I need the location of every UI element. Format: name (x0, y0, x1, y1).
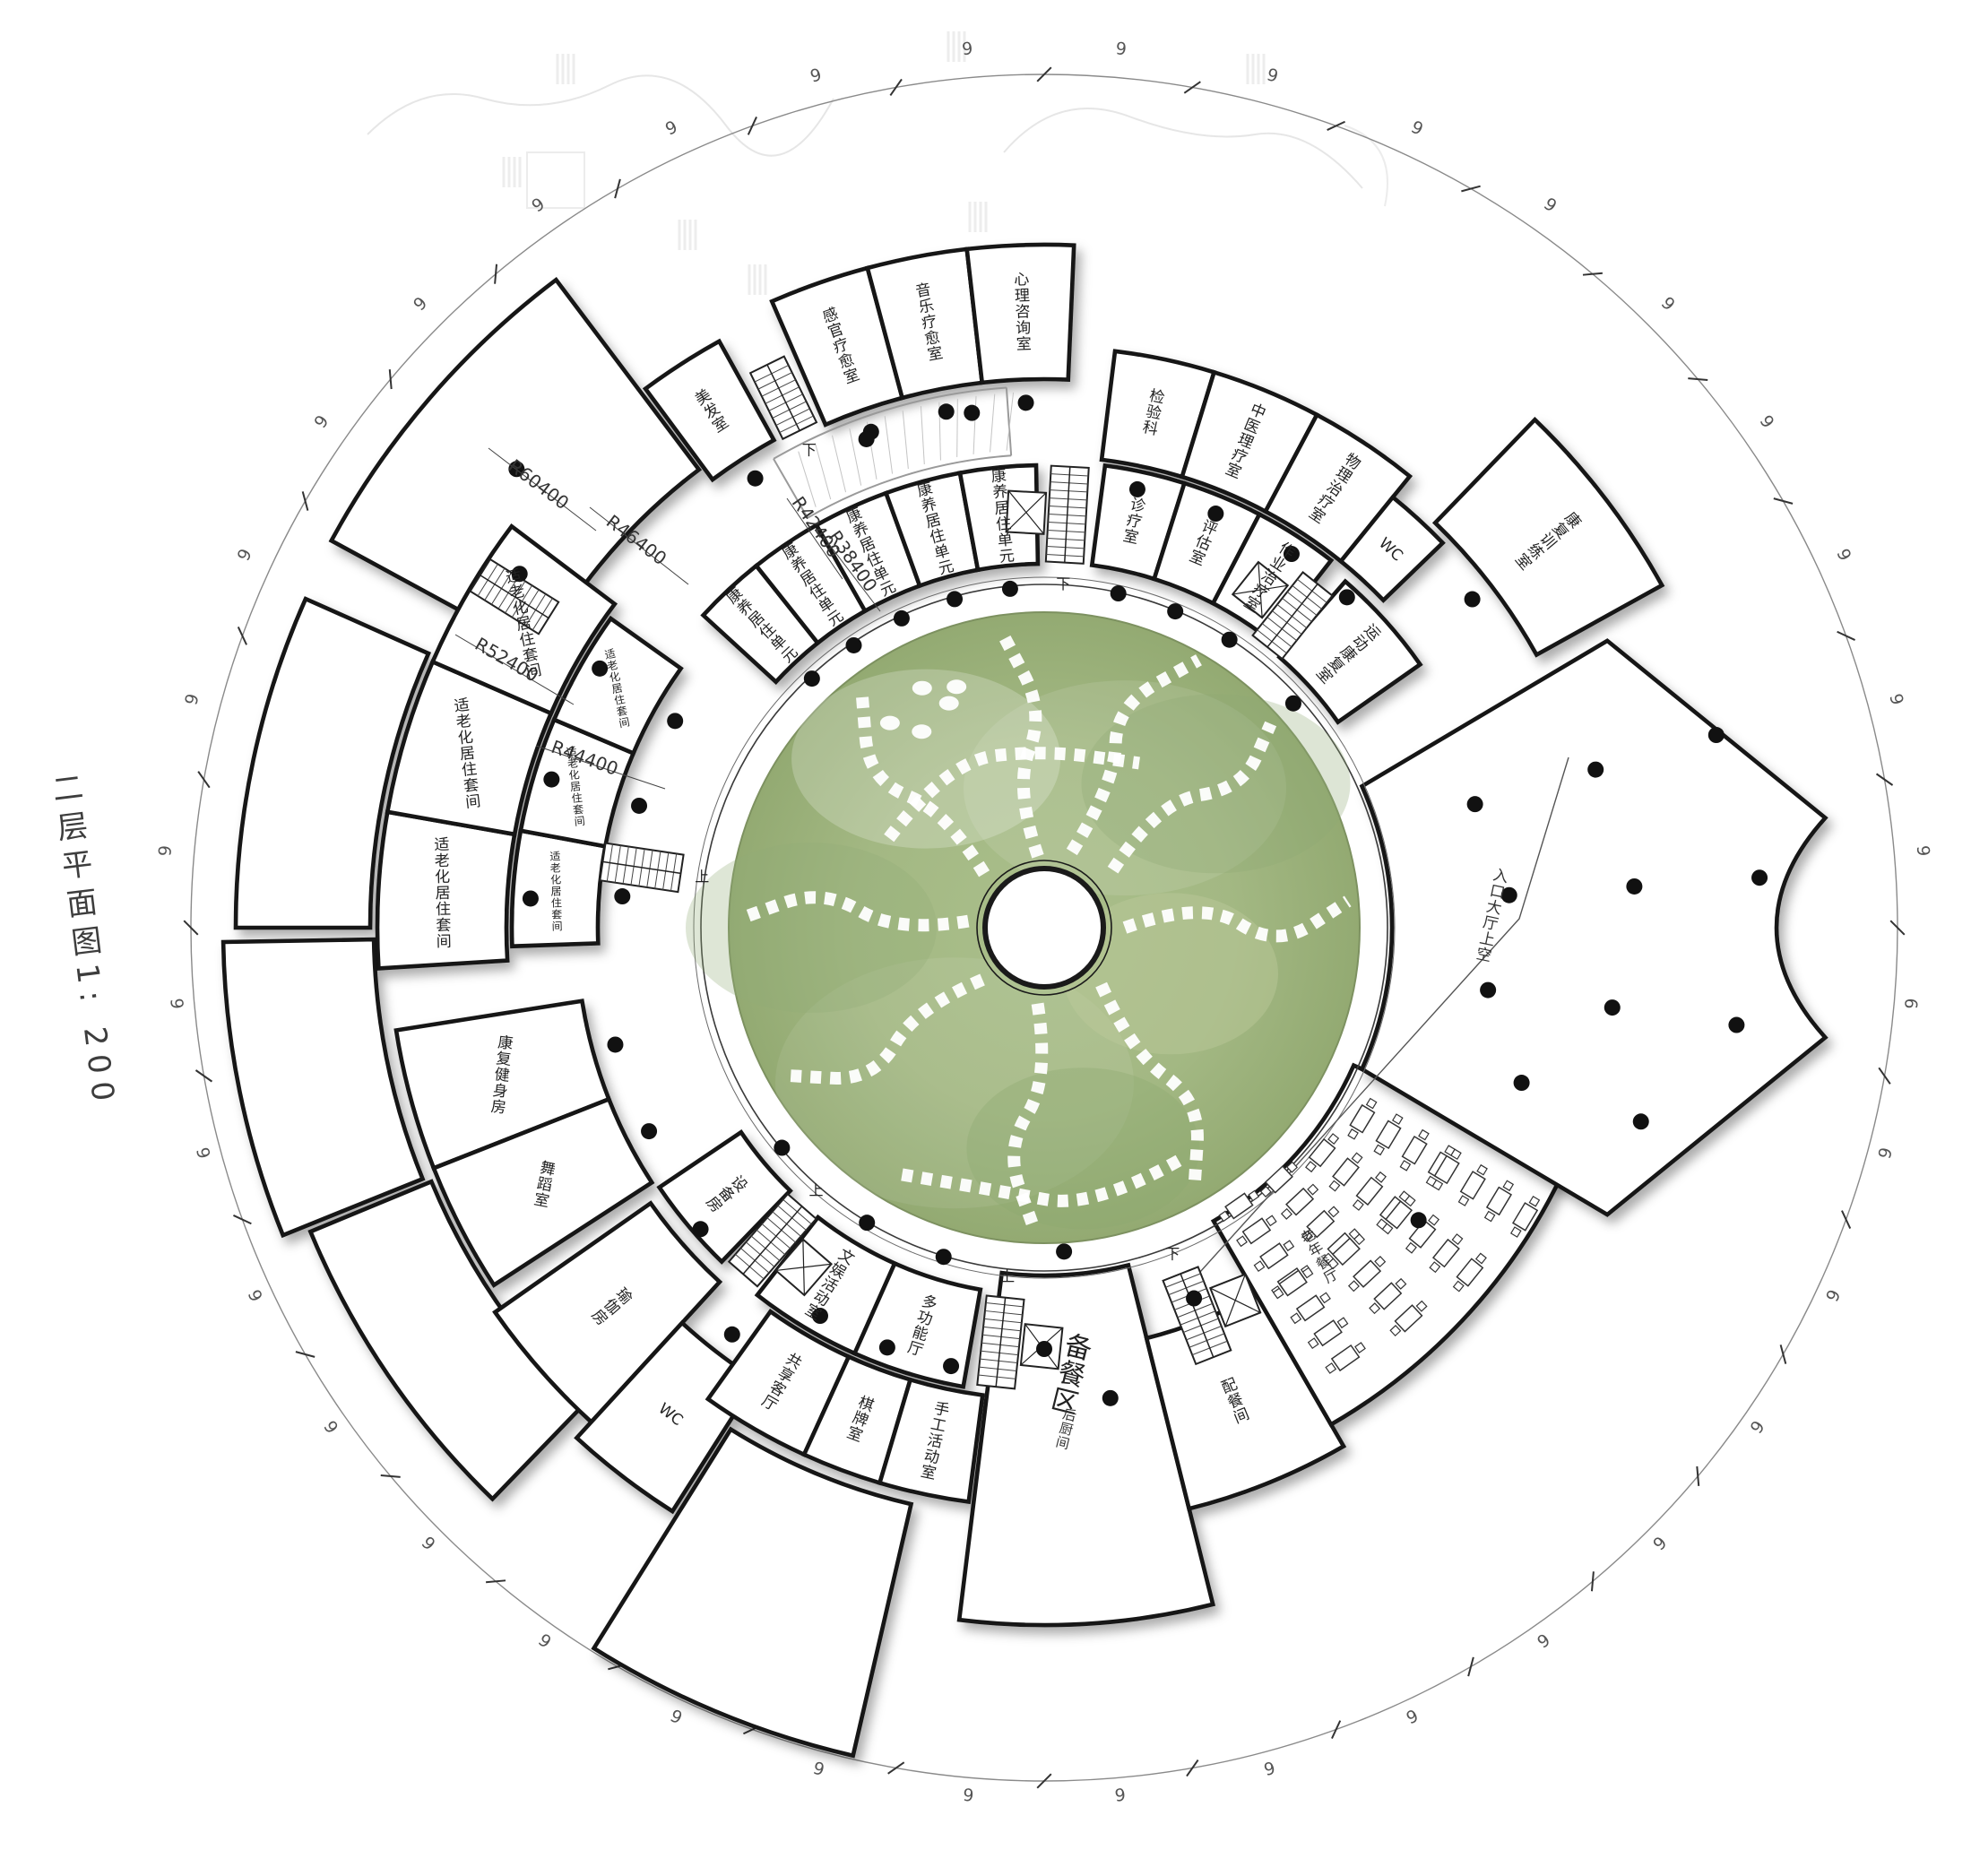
column-dot (592, 661, 608, 677)
dim-tick (486, 1580, 506, 1582)
column-dot (1036, 1341, 1052, 1357)
column-dot (607, 1036, 623, 1052)
dim-tick (1184, 82, 1200, 93)
dim-tick (1688, 378, 1707, 380)
dim-label: 9 (418, 1533, 439, 1554)
column-dot (1018, 394, 1034, 411)
dim-tick (296, 1352, 315, 1357)
background-sketches (367, 31, 1387, 295)
dim-label: 9 (319, 1417, 341, 1438)
room-west-wing-a (223, 939, 422, 1235)
dim-tick (1774, 498, 1793, 504)
column-dot (936, 1249, 952, 1265)
column-dot (724, 1327, 740, 1343)
dim-label: 9 (528, 194, 549, 216)
stair-direction-label: 上 (695, 868, 709, 885)
column-dot (1002, 581, 1018, 597)
room-senior-suite-1-label: 适老化居住套间 (434, 836, 452, 951)
dim-label: 9 (244, 1287, 266, 1305)
stone (939, 696, 959, 711)
dim-tick (888, 1762, 904, 1774)
dim-label: 9 (961, 39, 973, 59)
dim-tick (748, 117, 756, 134)
dim-label: 9 (192, 1145, 213, 1161)
dim-label: 9 (1756, 411, 1778, 432)
column-dot (523, 890, 539, 906)
dim-label: 9 (1657, 293, 1679, 315)
dim-tick (1697, 1466, 1699, 1486)
dim-tick (615, 179, 620, 198)
dim-label: 9 (1404, 1706, 1422, 1728)
column-dot (1587, 762, 1604, 778)
dim-tick (1877, 774, 1893, 785)
dim-label: 9 (1875, 1145, 1897, 1161)
stair-west-inner (600, 843, 683, 893)
column-dot (1514, 1075, 1530, 1091)
dim-tick (233, 1215, 251, 1223)
dim-label: 9 (662, 117, 680, 140)
column-dot (894, 610, 910, 627)
column-dot (943, 1358, 959, 1374)
column-dot (1728, 1017, 1744, 1033)
column-dot (748, 471, 764, 487)
stone (947, 679, 966, 694)
dim-tick (890, 79, 902, 95)
column-dot (641, 1123, 657, 1139)
dim-tick (1837, 632, 1855, 640)
dim-label: 9 (410, 293, 431, 315)
dim-label: 9 (1649, 1533, 1671, 1554)
column-dot (667, 713, 683, 729)
dim-label: 9 (1822, 1287, 1845, 1305)
dim-tick (495, 264, 497, 284)
dim-tick (381, 1475, 401, 1477)
dim-label: 9 (811, 1759, 826, 1780)
dim-label: 9 (1832, 546, 1854, 564)
column-dot (846, 637, 862, 653)
sheet: 二层平面图1: 200 9999999999999999999999999999… (0, 0, 1971, 1876)
column-dot (1708, 727, 1725, 743)
stair-direction-label: 下 (1165, 1245, 1180, 1262)
dim-label: 9 (1262, 1759, 1277, 1780)
stone (912, 724, 931, 739)
central-void (985, 869, 1103, 987)
dim-label: 9 (1885, 692, 1906, 707)
dim-tick (1583, 273, 1603, 275)
stone (880, 716, 900, 731)
column-dot (1604, 999, 1621, 1016)
column-dot (1626, 878, 1642, 895)
dim-tick (1879, 1068, 1890, 1084)
dim-label: 9 (1913, 844, 1933, 857)
stone (912, 681, 932, 696)
column-dot (631, 798, 647, 814)
dim-label: 9 (1540, 194, 1560, 216)
room-psych-counseling-label: 心理咨询室 (1014, 271, 1032, 354)
column-dot (1102, 1390, 1119, 1406)
column-dot (614, 888, 630, 904)
column-dot (1186, 1291, 1202, 1307)
dim-label: 9 (166, 998, 186, 1010)
stair-direction-label: 上 (1000, 1267, 1015, 1284)
stair-direction-label: 下 (802, 442, 817, 459)
column-dot (543, 772, 559, 788)
stair-direction-label: 上 (808, 1181, 823, 1198)
column-dot (1111, 585, 1127, 601)
dim-tick (1781, 1344, 1786, 1363)
column-dot (693, 1221, 709, 1237)
column-dot (1467, 796, 1483, 812)
dim-label: 9 (1265, 65, 1280, 86)
dim-tick (1332, 1721, 1340, 1739)
column-dot (947, 591, 963, 607)
column-dot (774, 1140, 790, 1156)
dim-label: 9 (1747, 1417, 1769, 1438)
column-dot (859, 431, 875, 447)
column-dot (859, 1215, 875, 1231)
column-dot (964, 405, 980, 421)
column-dot (879, 1339, 895, 1355)
floor-plan: 999999999999999999999999999999999999下下上上… (0, 0, 1971, 1876)
dim-label: 9 (667, 1706, 685, 1728)
dim-label: 9 (310, 411, 333, 432)
column-dot (1465, 592, 1481, 608)
column-dot (1056, 1243, 1072, 1259)
column-dot (1411, 1212, 1427, 1228)
dim-tick (1468, 1657, 1474, 1676)
dim-label: 9 (234, 546, 256, 564)
column-dot (1633, 1113, 1649, 1129)
dim-label: 9 (181, 692, 203, 707)
dim-tick (390, 369, 392, 389)
dim-label: 9 (1114, 1785, 1127, 1806)
dim-label: 9 (962, 1785, 974, 1806)
column-dot (938, 403, 955, 419)
stair-direction-label: 下 (1056, 575, 1070, 592)
dim-tick (195, 1070, 212, 1082)
dim-label: 9 (534, 1630, 555, 1653)
dim-label: 9 (1902, 998, 1923, 1010)
dim-tick (1461, 186, 1480, 192)
column-dot (1751, 869, 1768, 886)
column-dot (1480, 982, 1496, 999)
dim-tick (1187, 1760, 1198, 1777)
dim-label: 9 (1408, 117, 1426, 140)
dim-tick (198, 772, 210, 788)
dim-label: 9 (1534, 1630, 1554, 1653)
column-dot (1285, 696, 1301, 712)
column-dot (1339, 589, 1355, 605)
dim-label: 9 (1115, 39, 1128, 59)
dim-tick (1592, 1571, 1594, 1591)
column-dot (1167, 603, 1183, 619)
dim-tick (303, 491, 308, 510)
column-dot (1222, 632, 1238, 648)
dim-label: 9 (155, 844, 176, 857)
dim-label: 9 (808, 65, 824, 86)
column-dot (804, 670, 820, 687)
